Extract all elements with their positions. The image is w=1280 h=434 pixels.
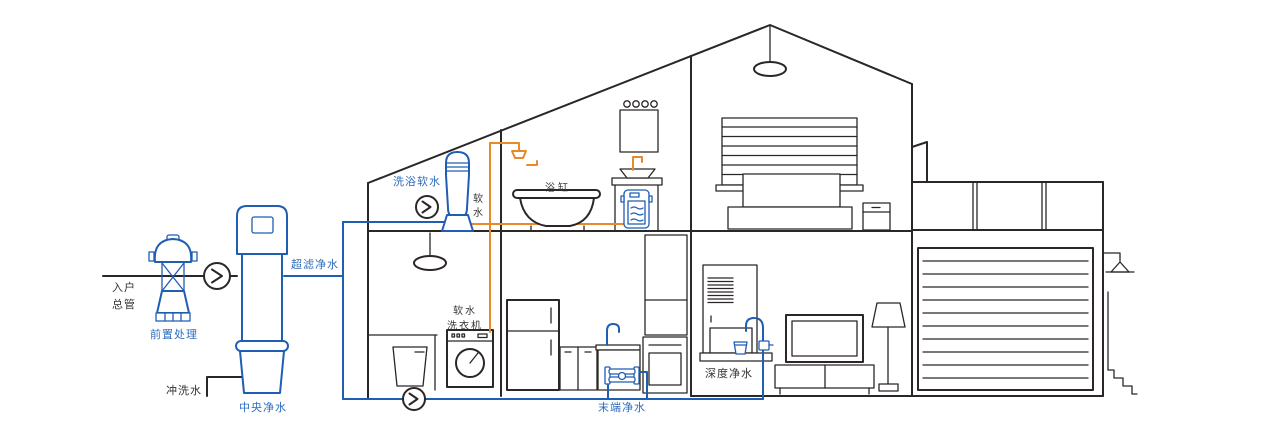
shower-head-icon bbox=[512, 151, 537, 165]
device-bath-softener bbox=[442, 152, 473, 231]
outdoor-wall-lamp-icon bbox=[1103, 253, 1134, 272]
vanity-basin bbox=[612, 157, 662, 185]
bed-headboard bbox=[743, 174, 840, 207]
bedroom-furniture bbox=[716, 118, 890, 230]
bed-base bbox=[728, 207, 852, 229]
device-pre-treatment bbox=[149, 235, 197, 321]
laundry-fixtures bbox=[368, 330, 493, 390]
label-pre-treatment: 前置处理 bbox=[150, 327, 198, 344]
nightstand bbox=[863, 203, 890, 230]
label-deep-purifier: 深度净水 bbox=[705, 366, 753, 383]
label-ultra-filtration: 超滤净水 bbox=[291, 257, 339, 274]
pendant-lamp-icon-laundry bbox=[414, 233, 446, 270]
diagram-canvas bbox=[0, 0, 1280, 434]
label-central-purifier: 中央净水 bbox=[239, 400, 287, 417]
mirror bbox=[620, 110, 658, 152]
label-soft-water-washer: 软水 洗衣机 bbox=[444, 305, 486, 334]
refrigerator-icon bbox=[507, 300, 559, 390]
label-inlet-main: 入户 总管 bbox=[112, 280, 136, 313]
water-cup-icon bbox=[734, 342, 747, 354]
kitchen-faucet-icon bbox=[607, 324, 619, 345]
device-central-purifier bbox=[236, 206, 288, 393]
label-soft-water: 软 水 bbox=[473, 193, 485, 220]
label-bathtub: 浴缸 bbox=[545, 181, 571, 196]
pendant-lamp-icon-bedroom bbox=[754, 25, 786, 76]
tv-stand bbox=[775, 365, 874, 394]
garage-roller-door bbox=[918, 248, 1093, 390]
house-water-system-diagram: 入户 总管 前置处理 冲洗水 中央净水 超滤净水 洗浴软水 软 水 浴缸 软水 … bbox=[0, 0, 1280, 434]
flow-arrow-softener bbox=[416, 196, 438, 218]
label-terminal-purifier: 末端净水 bbox=[598, 400, 646, 417]
laundry-basin bbox=[393, 347, 427, 386]
tv-icon bbox=[786, 315, 863, 362]
label-bath-softener: 洗浴软水 bbox=[393, 174, 441, 191]
washing-machine-icon bbox=[447, 330, 493, 387]
flow-arrow-inlet bbox=[204, 263, 230, 289]
basin-faucet-icon bbox=[633, 157, 642, 170]
floor-lamp-icon bbox=[872, 303, 905, 391]
flow-arrow-floor bbox=[403, 388, 425, 410]
mirror-lights bbox=[624, 101, 657, 107]
vanity-water-heater-device bbox=[621, 190, 652, 228]
kitchen-appliances bbox=[507, 235, 687, 393]
pipe-flush-water bbox=[207, 377, 243, 396]
outdoor-steps bbox=[1108, 292, 1137, 394]
oven-column bbox=[643, 235, 687, 393]
kitchen-cabinets bbox=[560, 347, 597, 390]
label-flush-water: 冲洗水 bbox=[166, 383, 202, 400]
